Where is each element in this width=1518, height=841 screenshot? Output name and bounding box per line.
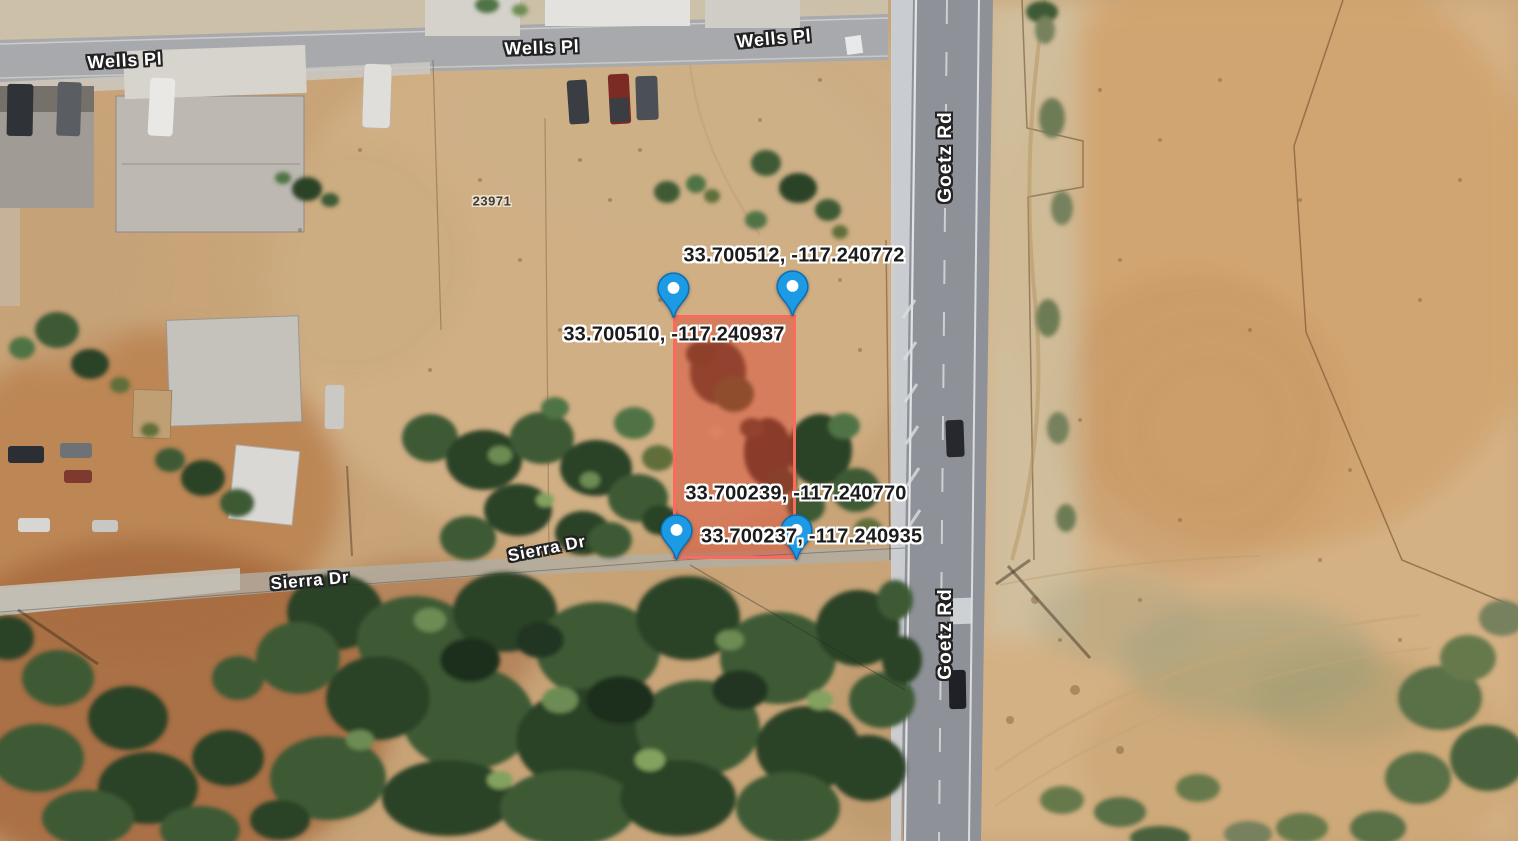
map-pin-top-right[interactable] [776,270,809,316]
coordinate-label-bottom-left: 33.700237, -117.240935 [701,526,922,549]
map-pin-top-left[interactable] [657,272,690,318]
address-label: 23971 [473,194,512,209]
map-viewport: 33.700512, -117.240772 33.700510, -117.2… [0,0,1518,841]
road-label-wells-pl-left: Wells Pl [87,49,163,74]
coordinate-label-top-left: 33.700510, -117.240937 [563,324,784,347]
coordinate-label-bottom-right: 33.700239, -117.240770 [685,483,906,506]
road-label-wells-pl-center: Wells Pl [504,36,580,60]
road-label-goetz-rd-lower: Goetz Rd [935,588,957,679]
road-label-goetz-rd-upper: Goetz Rd [935,111,957,202]
map-pin-bottom-left[interactable] [660,514,693,560]
coordinate-label-top-right: 33.700512, -117.240772 [683,245,904,268]
